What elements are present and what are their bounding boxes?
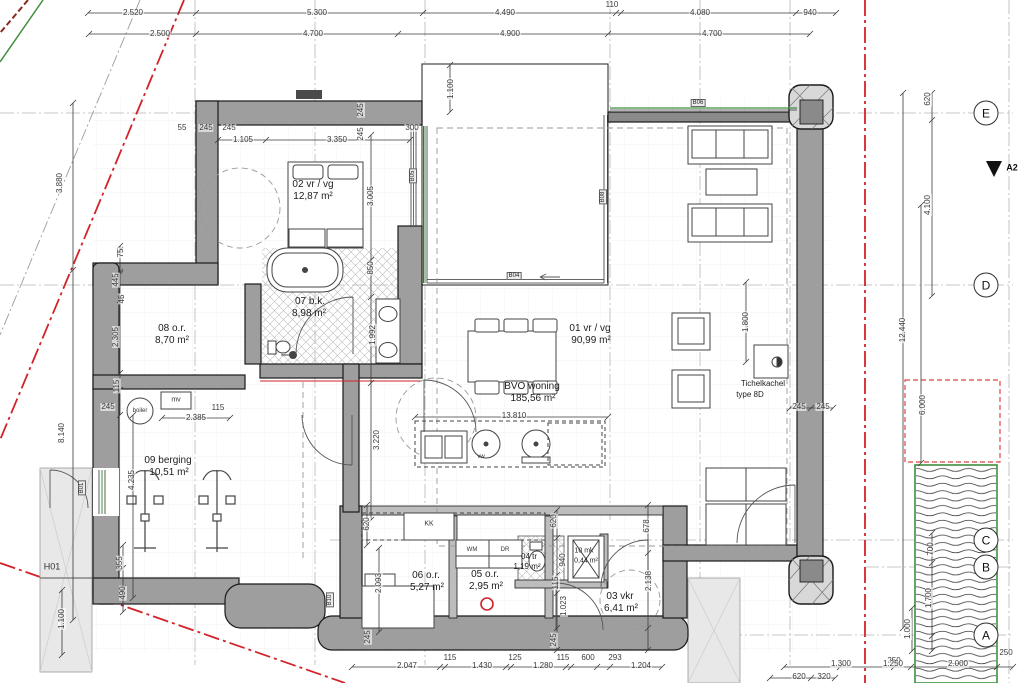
- sofa: [706, 504, 786, 545]
- shaft: [568, 536, 604, 582]
- coffee-table: [706, 169, 757, 195]
- sofa: [688, 204, 772, 242]
- floor-plan-drawing: 2.5205.3004.4901104.0809402.5004.7004.90…: [0, 0, 1024, 683]
- red-dashed-zone: [905, 380, 1000, 462]
- washbasins: [376, 299, 400, 363]
- sofa: [688, 126, 772, 164]
- sofa: [706, 468, 786, 501]
- mechanical-ventilation-unit: [161, 392, 191, 409]
- section-arrow: [986, 161, 1002, 177]
- dining-table: [468, 319, 557, 394]
- tile-stove: [754, 345, 788, 378]
- armchair: [672, 370, 710, 408]
- washer-dryer: [456, 540, 522, 568]
- floor-plan-canvas: [0, 0, 1024, 683]
- boiler: [127, 398, 153, 424]
- bed: [288, 162, 363, 248]
- bathtub: [267, 248, 343, 292]
- vegetation-strip: [915, 465, 997, 683]
- armchair: [672, 313, 710, 350]
